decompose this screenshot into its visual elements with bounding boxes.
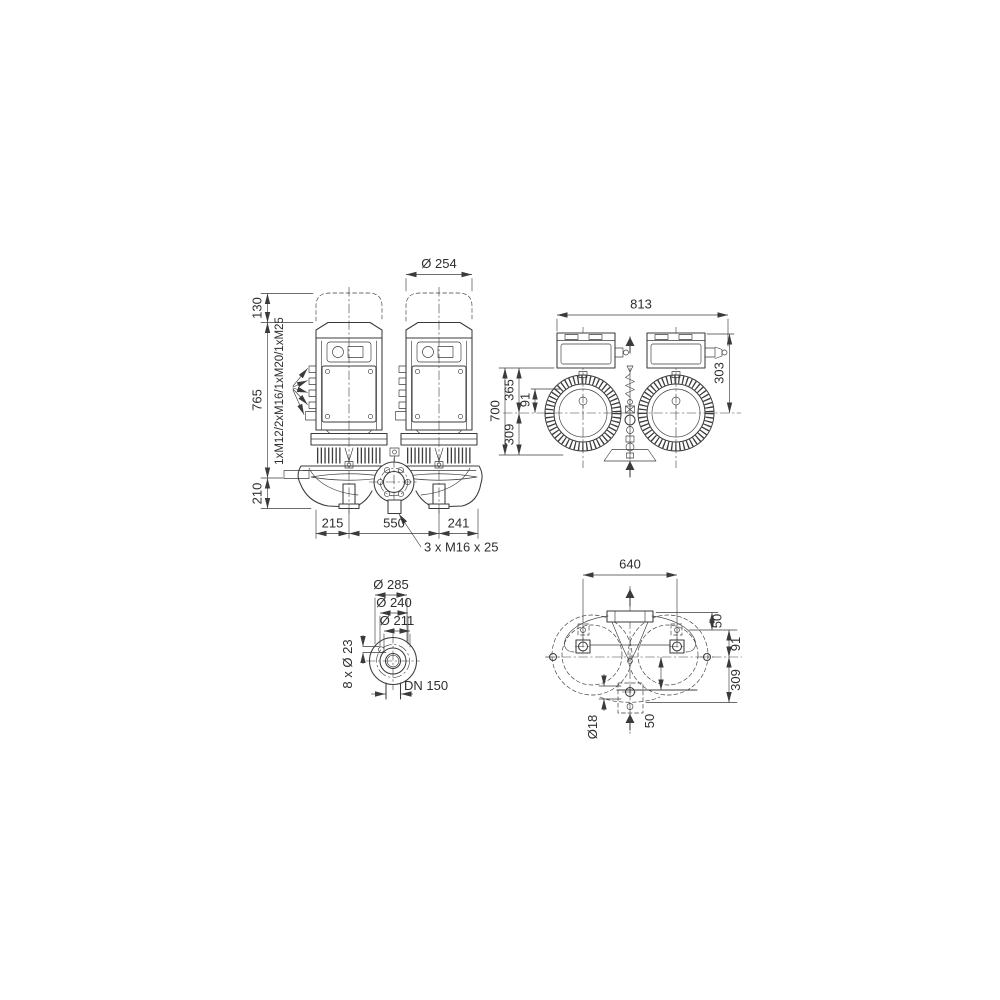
dim-label-50-upper: 50 — [710, 614, 725, 628]
valve-detail — [625, 366, 635, 459]
front-view: 3 x M16 x 25 1xM12/2xM16/1xM20/1xM25 Ø 2… — [250, 256, 499, 555]
vent-screw — [390, 448, 399, 456]
cable-gland — [306, 412, 317, 421]
cable-gland — [309, 378, 316, 385]
cable-gland-label: 1xM12/2xM16/1xM20/1xM25 — [274, 317, 286, 465]
dim-label-91-top: 91 — [518, 393, 533, 407]
top-view: 813 303 700 365 91 309 — [488, 297, 742, 478]
button-icon — [333, 347, 344, 358]
dim-label-bolt-holes: 8 x Ø 23 — [340, 639, 355, 688]
dim-label-241: 241 — [448, 516, 470, 531]
dim-flange-dn: DN 150 — [371, 678, 448, 694]
flange-detail-view: Ø 285 Ø 240 Ø 211 8 x Ø 23 DN 150 — [340, 577, 448, 699]
dim-label-309-top: 309 — [502, 424, 517, 446]
cable-gland-callout: 1xM12/2xM16/1xM20/1xM25 — [274, 317, 308, 465]
dim-label-285: Ø 285 — [373, 577, 408, 592]
dim-label-motor-diameter: Ø 254 — [421, 256, 456, 271]
terminal-box-left — [557, 333, 629, 368]
dim-label-dn150: DN 150 — [404, 678, 448, 693]
dim-base-anchor-hole: Ø18 — [585, 674, 621, 739]
gauge-port-stub — [284, 471, 309, 479]
display-window — [348, 347, 363, 358]
pump-dimensional-drawing: 3 x M16 x 25 1xM12/2xM16/1xM20/1xM25 Ø 2… — [0, 0, 1000, 1000]
connector-stub — [705, 348, 715, 357]
dim-label-anchor-hole: Ø18 — [585, 715, 600, 740]
anchor-bolt-bottom — [617, 683, 697, 713]
dim-motor-diameter: Ø 254 — [406, 256, 472, 291]
dim-label-765: 765 — [250, 389, 265, 411]
drawing-canvas: 3 x M16 x 25 1xM12/2xM16/1xM20/1xM25 Ø 2… — [0, 0, 1000, 1000]
dim-label-210: 210 — [250, 483, 265, 505]
dim-label-303: 303 — [712, 362, 727, 384]
dim-top-box-depth: 303 — [707, 334, 734, 413]
dim-label-240: Ø 240 — [376, 595, 411, 610]
dim-label-130: 130 — [250, 297, 265, 319]
dim-label-215: 215 — [322, 516, 344, 531]
dim-flange-outer: Ø 285 — [373, 577, 408, 644]
cable-gland — [309, 402, 316, 409]
dim-label-211: Ø 211 — [380, 613, 414, 628]
anchor-bolt-side-right — [700, 654, 714, 661]
discharge-flange — [607, 611, 653, 622]
dim-label-813: 813 — [630, 297, 652, 312]
cable-gland — [309, 390, 316, 397]
dim-label-91-base: 91 — [728, 637, 743, 651]
connector-stub — [615, 348, 623, 357]
dim-label-640: 640 — [619, 557, 641, 572]
tapping-note-label: 3 x M16 x 25 — [424, 540, 498, 555]
cable-gland — [309, 366, 316, 373]
tapping-boss — [388, 500, 401, 514]
dim-top-depth-chain: 700 365 91 309 — [488, 368, 564, 455]
dim-label-50-lower: 50 — [642, 714, 657, 728]
base-plan-view: 640 50 91 309 Ø18 50 — [545, 557, 743, 740]
dim-label-365: 365 — [502, 379, 517, 401]
dim-base-50-lower: 50 — [642, 657, 661, 728]
dim-label-700: 700 — [488, 400, 503, 422]
dim-label-309-base: 309 — [728, 669, 743, 691]
dim-label-550: 550 — [383, 516, 405, 531]
